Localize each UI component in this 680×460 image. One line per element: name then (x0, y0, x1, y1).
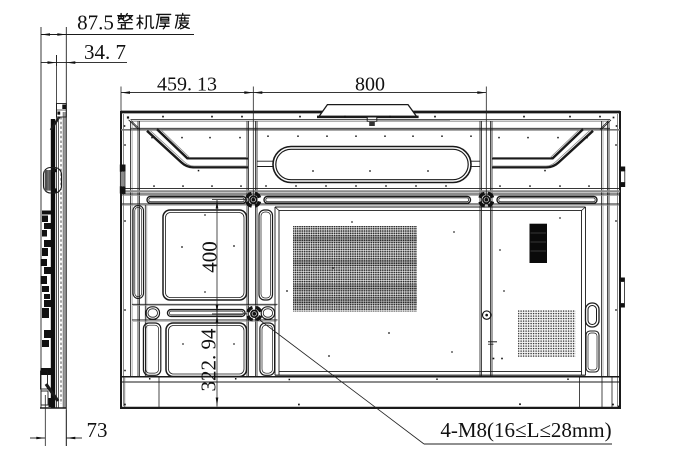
svg-text:4-M8(16≤L≤28mm): 4-M8(16≤L≤28mm) (440, 418, 611, 442)
svg-text:34. 7: 34. 7 (84, 40, 126, 64)
svg-text:800: 800 (355, 74, 385, 96)
svg-text:400: 400 (198, 241, 222, 273)
svg-text:322. 94: 322. 94 (197, 328, 221, 392)
svg-text:459. 13: 459. 13 (157, 74, 217, 96)
svg-text:87.5: 87.5 (77, 11, 114, 35)
svg-text:73: 73 (87, 418, 108, 442)
